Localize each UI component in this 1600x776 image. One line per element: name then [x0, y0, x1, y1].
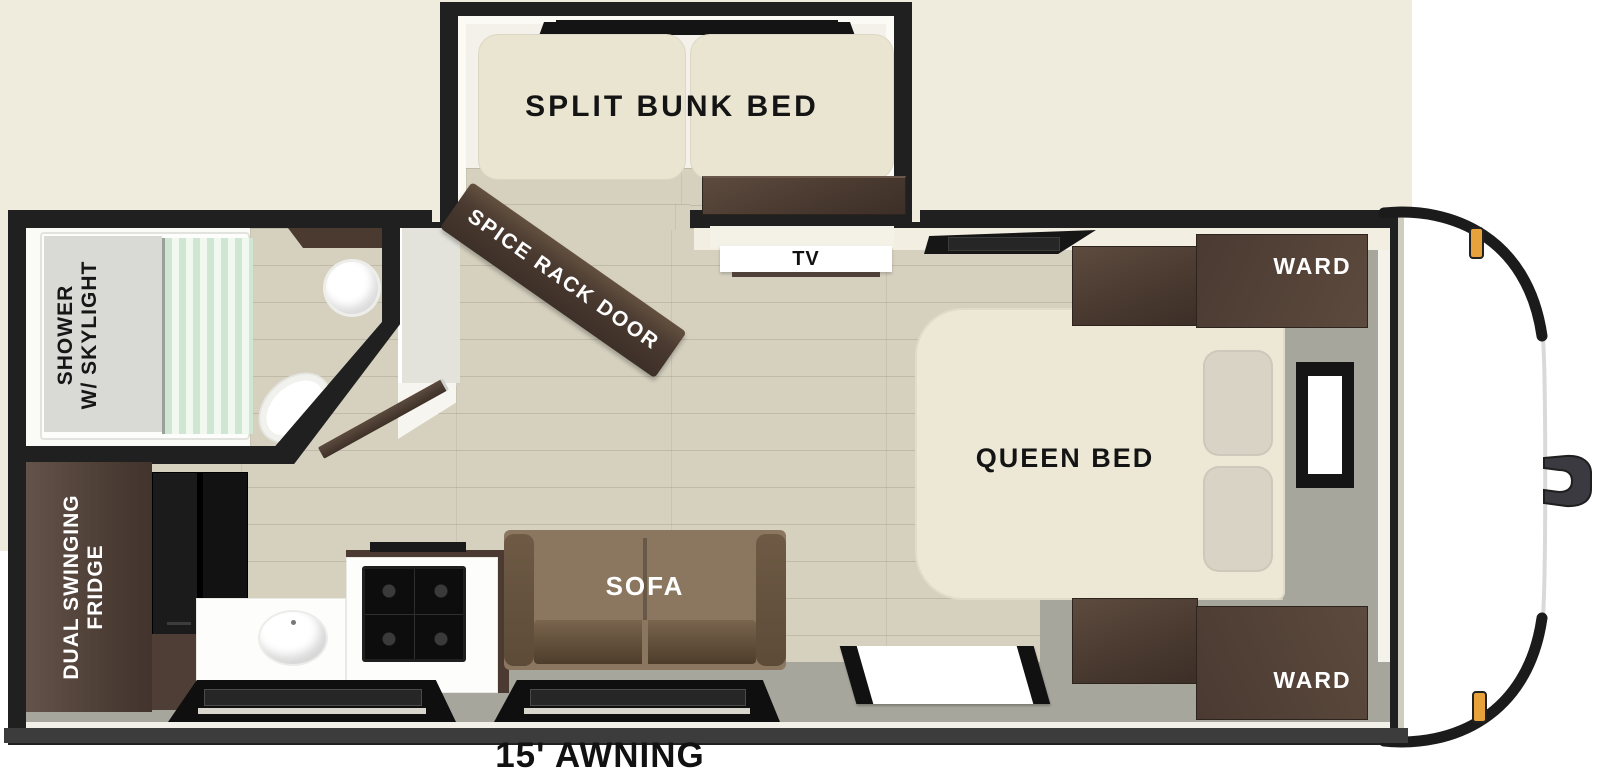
bunk-trim-left: [432, 0, 440, 222]
bottom-window-right-sill: [524, 708, 750, 714]
wardrobe-top-inner: [1072, 246, 1198, 326]
bottom-window-right: [494, 680, 780, 722]
shower-label-line1: SHOWER: [54, 235, 78, 435]
nose-body: [1404, 212, 1544, 744]
bunk-label: SPLIT BUNK BED: [462, 90, 882, 124]
right-wall-inner-trim: [1378, 250, 1390, 662]
roof-vent-inner: [948, 237, 1060, 251]
wardrobe-top: [1196, 234, 1368, 328]
bunk-window: [556, 20, 838, 35]
side-cabinet: [398, 228, 460, 386]
faucet-dot: [291, 620, 296, 625]
marker-light-bottom: [1473, 692, 1486, 722]
bathroom-sink: [326, 262, 378, 314]
wardrobe-top-label: WARD: [1240, 254, 1385, 280]
bedroom-front-window-glass: [1308, 376, 1342, 474]
kitchen-sink: [260, 612, 326, 664]
fridge-label-line2: FRIDGE: [84, 467, 108, 707]
fridge-label: DUAL SWINGING FRIDGE: [60, 467, 116, 707]
corner-shelf: [288, 228, 382, 248]
bottom-window-right-inner: [530, 689, 746, 706]
sofa-seat-divider: [642, 620, 648, 664]
fridge-door-handle: [167, 622, 191, 625]
nose-right-shade: [1543, 338, 1545, 616]
bottom-window-left-sill: [198, 708, 426, 714]
bunk-trim-right: [912, 0, 920, 222]
awning-label: 15' AWNING: [445, 736, 755, 775]
shower-curtain: [162, 238, 253, 434]
fridge-label-line1: DUAL SWINGING: [60, 467, 84, 707]
shower-label: SHOWER W/ SKYLIGHT: [54, 235, 110, 435]
bed-pillow-top: [1203, 350, 1273, 456]
bottom-window-left: [168, 680, 456, 722]
queen-bed-label: QUEEN BED: [915, 443, 1215, 473]
entry-door: [840, 646, 1051, 704]
shower-label-line2: W/ SKYLIGHT: [78, 235, 102, 435]
stove: [362, 566, 466, 662]
tv-label: TV: [792, 248, 820, 270]
bed-pillow-bottom: [1203, 466, 1273, 572]
wardrobe-bottom-label: WARD: [1240, 668, 1385, 694]
sofa-label: SOFA: [504, 572, 786, 601]
sofa: SOFA: [504, 530, 786, 670]
tv-shelf: [710, 226, 894, 248]
hitch-coupler: [1544, 456, 1591, 506]
tv-cabinet-edge: [732, 272, 880, 277]
rv-floorplan: SPLIT BUNK BED SHOWER W/ SKYLIGHT SPICE …: [0, 0, 1600, 776]
marker-light-top: [1470, 228, 1483, 258]
bottom-window-left-inner: [204, 689, 422, 706]
wardrobe-bottom: [1196, 606, 1368, 720]
tv-panel: TV: [720, 246, 892, 272]
wardrobe-bottom-inner: [1072, 598, 1198, 684]
bunk-dresser: [702, 176, 906, 215]
stove-control-strip: [370, 542, 466, 552]
bedroom-front-window: [1296, 362, 1354, 488]
